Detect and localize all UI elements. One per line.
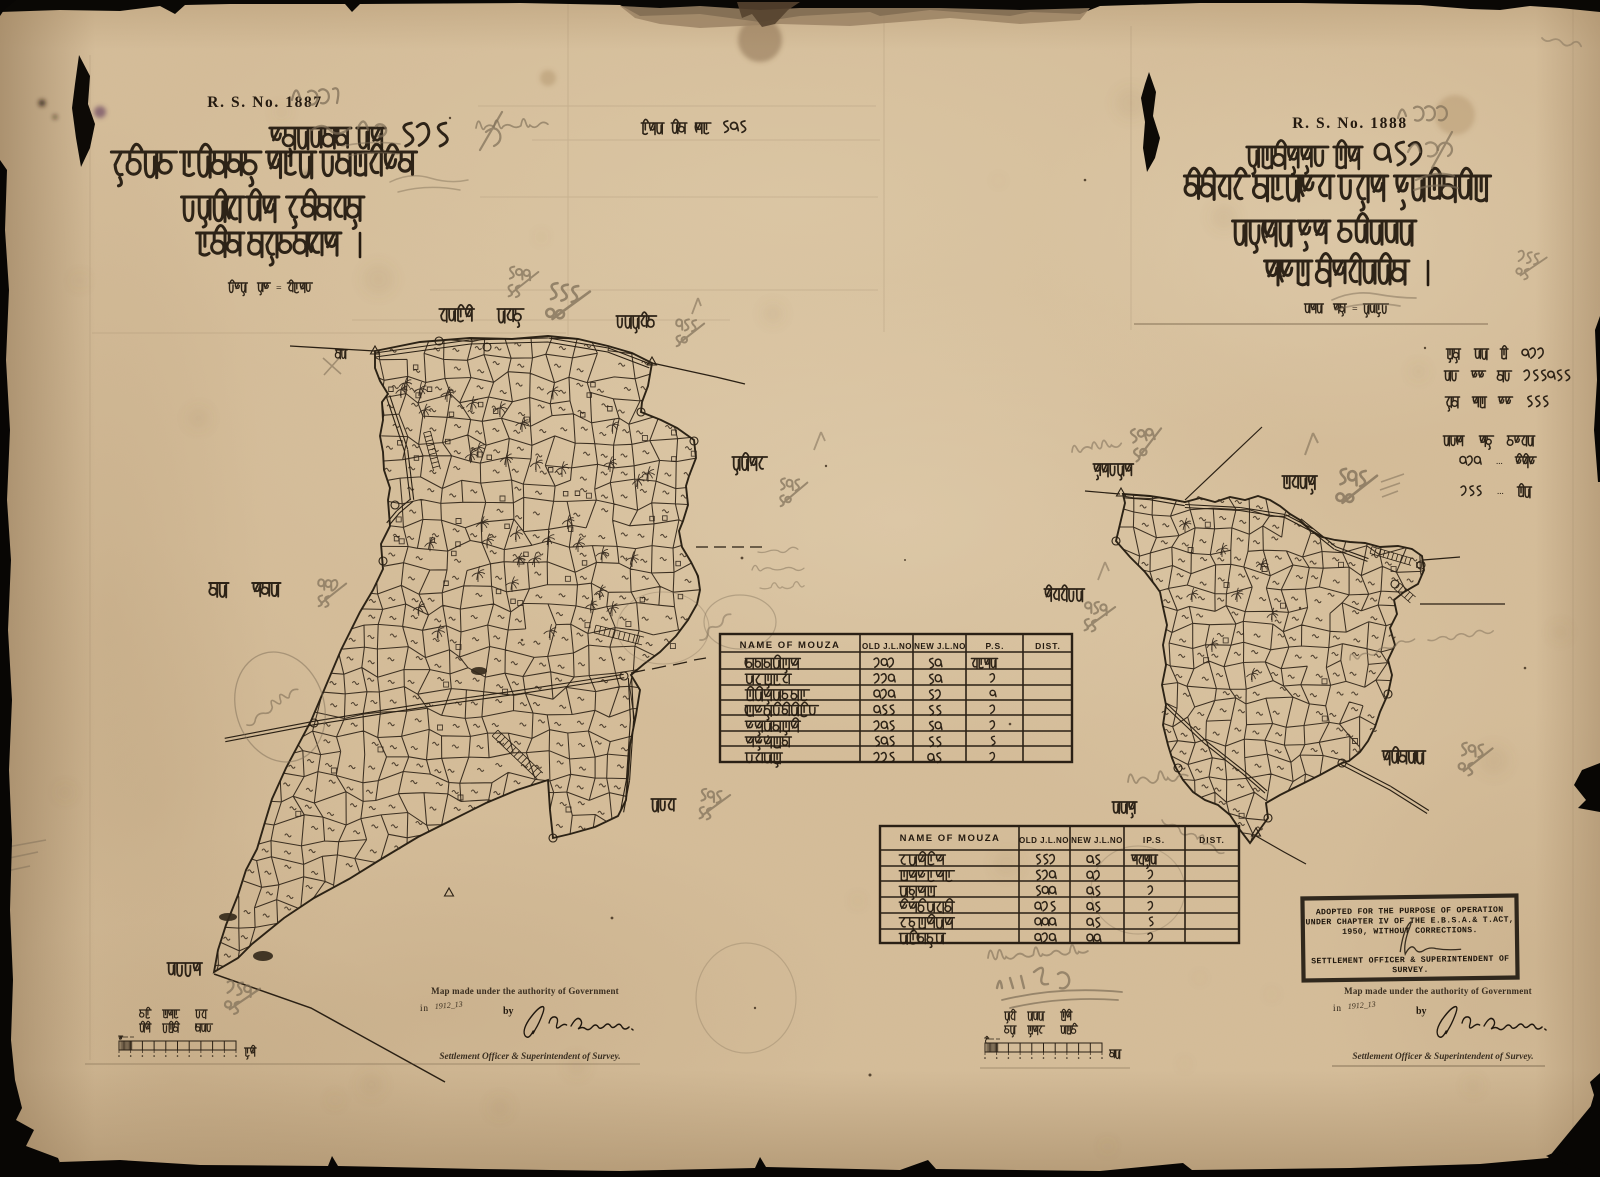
svg-text:OLD J.L.NO: OLD J.L.NO [862,642,912,651]
svg-text:in: in [1333,1003,1342,1013]
svg-text:...: ... [1496,456,1503,466]
svg-text:NEW J.L.NO: NEW J.L.NO [914,642,966,651]
svg-text:DIST.: DIST. [1199,835,1225,845]
svg-text:OLD J.L.NO: OLD J.L.NO [1019,836,1069,845]
svg-text:NEW J.L.NO: NEW J.L.NO [1071,836,1123,845]
svg-text:=: = [276,283,282,294]
svg-text:NAME OF MOUZA: NAME OF MOUZA [900,833,1001,844]
svg-text:R. S. No. 1887: R. S. No. 1887 [207,94,322,111]
svg-text:by: by [503,1006,514,1017]
svg-text:in: in [420,1003,429,1013]
svg-text:...: ... [1497,486,1504,496]
svg-text:Settlement Officer & Superinte: Settlement Officer & Superintendent of S… [439,1052,620,1062]
svg-text:Map made under the authority o: Map made under the authority of Governme… [431,986,619,996]
svg-text:R. S. No. 1888: R. S. No. 1888 [1292,115,1407,132]
svg-text:Settlement Officer & Superinte: Settlement Officer & Superintendent of S… [1352,1052,1533,1062]
svg-text:IP.S.: IP.S. [1143,835,1165,845]
svg-text:SURVEY.: SURVEY. [1392,966,1429,976]
svg-text:P.S.: P.S. [986,641,1005,651]
svg-text:NAME OF MOUZA: NAME OF MOUZA [740,640,841,651]
svg-text:Map made under the authority o: Map made under the authority of Governme… [1344,986,1532,996]
svg-text:by: by [1416,1006,1427,1017]
svg-text:DIST.: DIST. [1035,641,1061,651]
